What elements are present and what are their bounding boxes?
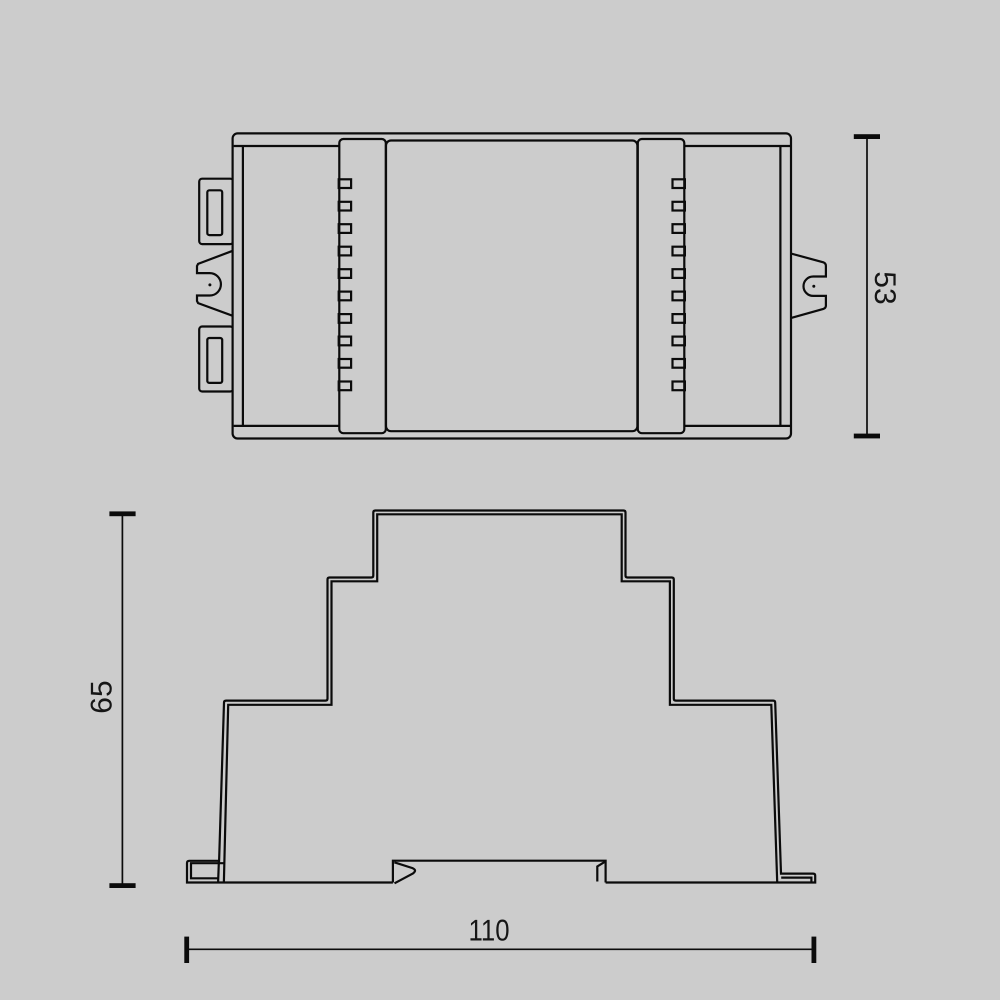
svg-text:110: 110 — [469, 915, 510, 948]
svg-text:53: 53 — [868, 271, 901, 304]
svg-text:65: 65 — [86, 680, 119, 713]
